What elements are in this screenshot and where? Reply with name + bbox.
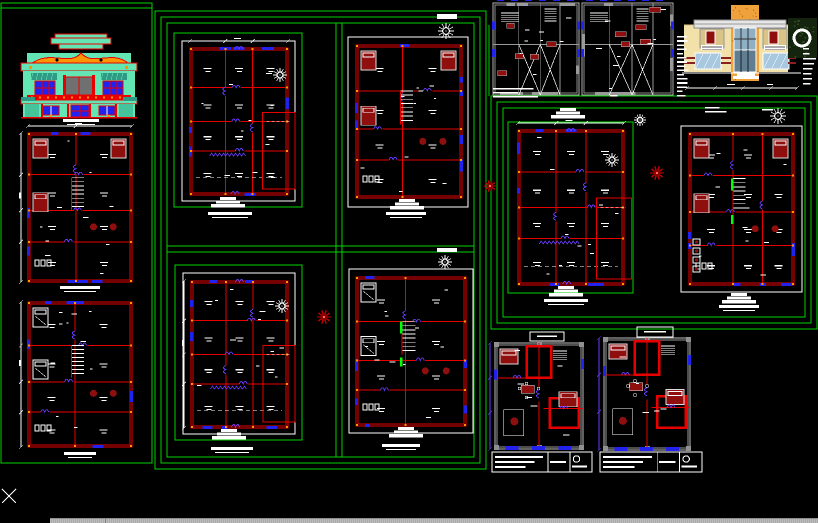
floor-plan-mid-top-right[interactable]	[355, 44, 463, 198]
drawing-title-text	[63, 119, 99, 125]
drawing-title-text	[382, 444, 420, 450]
floor-plan-right-mid-green[interactable]	[516, 120, 631, 286]
dimension-tick-bar	[437, 14, 457, 19]
floor-plan-mid-bottom-left[interactable]	[182, 279, 295, 430]
porch-steps	[549, 286, 583, 297]
porch-steps	[551, 108, 585, 119]
apartment-plan-bottom-right-1[interactable]	[488, 341, 584, 451]
horizontal-scrollbar[interactable]	[50, 518, 818, 523]
micro-text	[610, 95, 617, 97]
porch-steps	[212, 429, 246, 440]
floor-plan-right-ground[interactable]	[688, 133, 795, 286]
construction-plan-top-strip-left[interactable]	[492, 0, 580, 95]
north-compass-icon[interactable]	[275, 299, 289, 313]
porch-steps	[389, 427, 423, 438]
apartment-plan-bottom-right-2[interactable]	[597, 336, 691, 452]
drawing-label-box	[530, 332, 564, 341]
floor-plan-left-upper[interactable]	[19, 123, 134, 284]
construction-plan-top-strip-right[interactable]	[581, 0, 674, 95]
red-rosette-icon[interactable]	[317, 310, 331, 323]
modern-house-elevation[interactable]	[682, 5, 817, 90]
title-block	[492, 452, 592, 472]
north-compass-icon[interactable]	[605, 153, 619, 167]
drawing-title-text	[544, 299, 588, 305]
micro-text	[520, 96, 528, 98]
drawing-title-text	[208, 212, 252, 218]
red-rosette-icon[interactable]	[650, 166, 664, 179]
floor-plan-mid-top-left[interactable]	[188, 38, 295, 196]
panel-mid-bottom-left[interactable]	[175, 265, 302, 440]
drawing-title-text	[719, 305, 759, 311]
scrollbar-notch[interactable]	[105, 519, 106, 523]
cad-canvas[interactable]	[0, 0, 818, 523]
house-front-elevation[interactable]	[21, 34, 137, 119]
floor-plan-mid-bottom-right[interactable]	[355, 276, 467, 427]
drawing-title-text	[64, 452, 96, 458]
porch-steps	[211, 197, 245, 208]
dimension-tick-bar	[437, 248, 457, 252]
drawing-title-text	[386, 212, 426, 218]
north-compass-icon[interactable]	[273, 68, 287, 82]
panel-mid-bottom-right[interactable]	[349, 269, 473, 433]
north-compass-icon[interactable]	[438, 255, 452, 269]
north-compass-icon[interactable]	[634, 114, 646, 126]
panel-mid-top-left[interactable]	[174, 33, 302, 207]
porch-steps	[722, 293, 756, 304]
drawing-title-text	[60, 286, 100, 292]
drawing-title-text	[211, 447, 253, 453]
title-block	[600, 452, 702, 472]
porch-steps	[390, 199, 424, 210]
crosshair-cursor	[2, 489, 16, 503]
sheet-frame-middle[interactable]	[155, 11, 486, 469]
cad-application-window	[0, 0, 818, 523]
micro-text	[762, 109, 773, 111]
floor-plan-left-lower[interactable]	[19, 300, 133, 449]
